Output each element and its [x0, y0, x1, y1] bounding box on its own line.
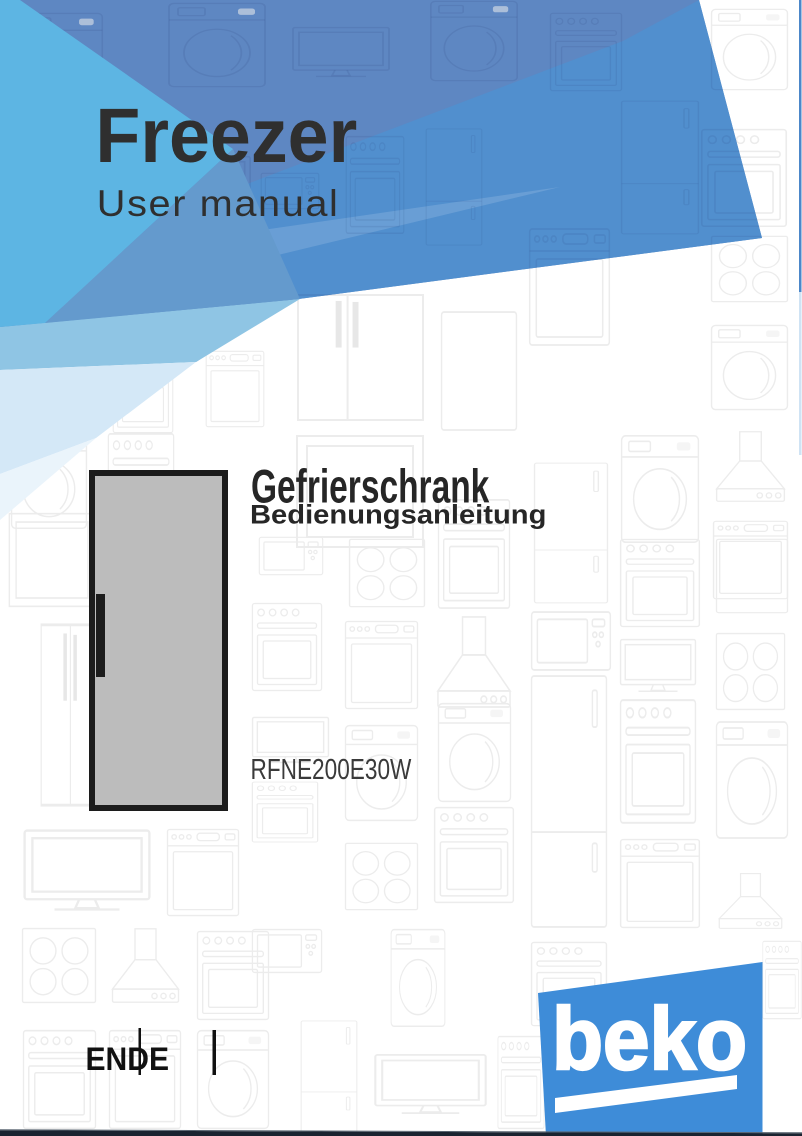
svg-text:Bedienungsanleitung: Bedienungsanleitung: [250, 499, 546, 529]
svg-text:Freezer: Freezer: [95, 92, 357, 178]
svg-text:ENDE: ENDE: [86, 1041, 170, 1077]
svg-text:beko: beko: [552, 990, 747, 1089]
svg-text:User manual: User manual: [97, 183, 340, 224]
svg-text:RFNE200E30W: RFNE200E30W: [251, 752, 412, 785]
